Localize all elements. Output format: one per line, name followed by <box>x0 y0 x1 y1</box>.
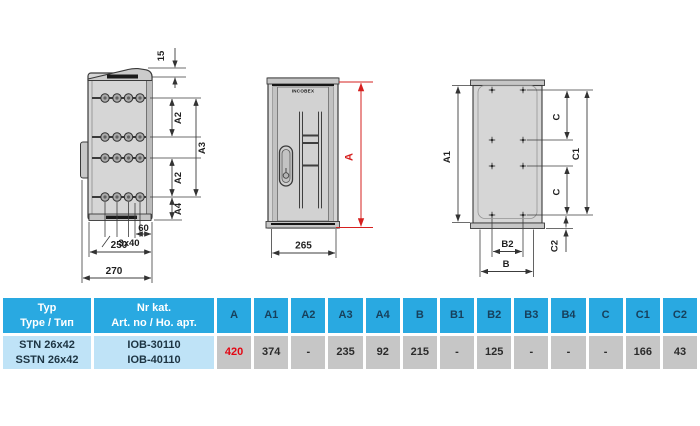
dim-label-a1: A1 <box>442 150 453 163</box>
keyhole <box>283 173 289 179</box>
art-no-line2: IOB-40110 <box>127 353 180 367</box>
dimensions-table: Typ Type / Тип Nr kat. Art. no / Но. арт… <box>3 298 697 369</box>
type-line1: STN 26x42 <box>19 338 75 352</box>
cell-value-a4: 92 <box>366 336 400 369</box>
art-no-line1: IOB-30110 <box>127 338 180 352</box>
cell-value-c: - <box>589 336 623 369</box>
table-header-type: Typ Type / Тип <box>3 298 91 333</box>
type-line2: SSTN 26x42 <box>16 353 79 367</box>
table-header-row: Typ Type / Тип Nr kat. Art. no / Но. арт… <box>3 298 697 333</box>
table-header-type-line1: Typ <box>38 301 57 315</box>
dim-label-265: 265 <box>295 241 312 252</box>
table-data-row: STN 26x42 SSTN 26x42 IOB-30110 IOB-40110… <box>3 336 697 369</box>
cell-value-a3: 235 <box>328 336 362 369</box>
table-header-dim-b1: B1 <box>440 298 474 333</box>
table-header-type-line2: Type / Тип <box>20 316 74 330</box>
dim-label-c2: C2 <box>550 240 561 252</box>
cell-value-c2: 43 <box>663 336 697 369</box>
top-cap <box>267 78 339 84</box>
dim-label-b: B <box>503 259 510 270</box>
dim-label-250: 250 <box>111 240 128 251</box>
table-header-dim-c2: C2 <box>663 298 697 333</box>
dim-label-a2-lower: A2 <box>173 172 184 184</box>
dim-label-b2: B2 <box>501 239 513 250</box>
side-view-drawing: 15 A2 A3 A2 A4 3x40 <box>81 48 209 283</box>
dim-label-a4: A4 <box>173 202 184 215</box>
table-header-dim-a: A <box>217 298 251 333</box>
rear-bottom-lip <box>471 223 545 229</box>
cell-value-a2: - <box>291 336 325 369</box>
table-header-art-line2: Art. no / Но. арт. <box>111 316 197 330</box>
dim-label-270: 270 <box>106 266 123 277</box>
dim-label-a: A <box>344 153 356 161</box>
rear-view-drawing: A1 C C1 C C2 B2 B <box>442 80 593 277</box>
rear-top-lip <box>471 80 545 86</box>
cell-value-a1: 374 <box>254 336 288 369</box>
table-header-dim-b2: B2 <box>477 298 511 333</box>
cell-art-no: IOB-30110 IOB-40110 <box>94 336 214 369</box>
cell-value-a: 420 <box>217 336 251 369</box>
table-header-dim-a3: A3 <box>328 298 362 333</box>
cell-value-b1: - <box>440 336 474 369</box>
brand-label: INCOBEX <box>292 89 315 94</box>
dim-label-c1: C1 <box>571 147 582 160</box>
rear-body <box>473 86 542 224</box>
dim-label-15: 15 <box>156 50 167 61</box>
table-header-art-line1: Nr kat. <box>137 301 171 315</box>
table-header-dim-a4: A4 <box>366 298 400 333</box>
table-header-dim-c1: C1 <box>626 298 660 333</box>
table-header-dim-a2: A2 <box>291 298 325 333</box>
cell-value-b: 215 <box>403 336 437 369</box>
dim-label-c-top: C <box>552 113 563 120</box>
datasheet-page: 15 A2 A3 A2 A4 3x40 <box>0 0 700 426</box>
cell-value-b4: - <box>551 336 585 369</box>
bottom-slot <box>106 216 137 219</box>
cell-value-c1: 166 <box>626 336 660 369</box>
table-header-art: Nr kat. Art. no / Но. арт. <box>94 298 214 333</box>
door-handle <box>280 146 293 186</box>
dim-label-60: 60 <box>138 223 149 234</box>
table-header-dim-b3: B3 <box>514 298 548 333</box>
cell-type: STN 26x42 SSTN 26x42 <box>3 336 91 369</box>
table-header-dim-b4: B4 <box>551 298 585 333</box>
front-view-drawing: INCOBEX <box>266 78 373 258</box>
table-header-dim-c: C <box>589 298 623 333</box>
table-header-dim-a1: A1 <box>254 298 288 333</box>
top-slot <box>107 75 138 79</box>
technical-drawings: 15 A2 A3 A2 A4 3x40 <box>0 0 700 296</box>
cell-value-b3: - <box>514 336 548 369</box>
table-header-dim-b: B <box>403 298 437 333</box>
dim-label-a3: A3 <box>197 142 208 154</box>
cell-value-b2: 125 <box>477 336 511 369</box>
dim-label-c-bottom: C <box>552 188 563 195</box>
dim-label-a2: A2 <box>173 112 184 124</box>
